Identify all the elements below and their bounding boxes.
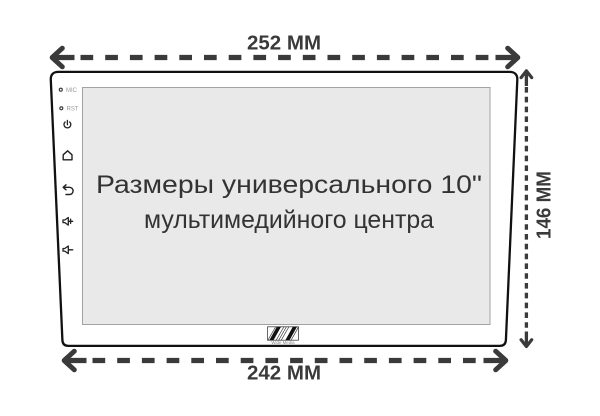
svg-text:Размеры универсального 10": Размеры универсального 10" (96, 171, 482, 199)
svg-text:146 MM: 146 MM (533, 171, 556, 239)
svg-text:RST: RST (67, 107, 79, 113)
svg-text:Wide Media: Wide Media (271, 340, 295, 345)
svg-text:мультимедийного центра: мультимедийного центра (144, 206, 434, 234)
svg-text:242 MM: 242 MM (247, 362, 321, 385)
svg-text:252 MM: 252 MM (247, 32, 321, 55)
svg-text:MIC: MIC (66, 88, 78, 94)
